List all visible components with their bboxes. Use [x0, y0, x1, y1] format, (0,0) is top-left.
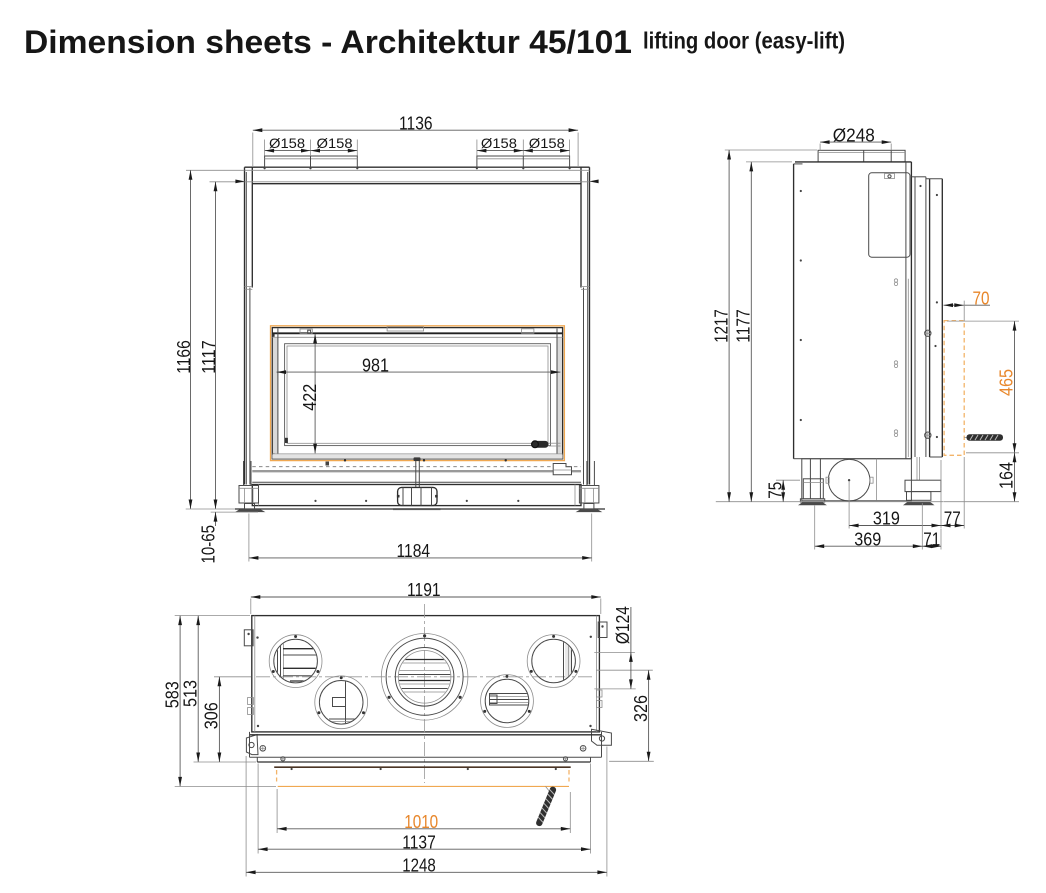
svg-text:1136: 1136 [399, 113, 433, 133]
svg-text:Ø158: Ø158 [317, 135, 353, 151]
svg-text:Ø158: Ø158 [529, 135, 565, 151]
svg-text:lifting door (easy-lift): lifting door (easy-lift) [643, 28, 845, 54]
svg-text:1217: 1217 [711, 309, 731, 343]
svg-text:75: 75 [765, 482, 785, 499]
svg-text:77: 77 [944, 509, 961, 529]
svg-text:583: 583 [162, 681, 182, 708]
svg-text:513: 513 [180, 680, 200, 707]
svg-text:981: 981 [362, 355, 389, 375]
svg-text:1248: 1248 [402, 856, 436, 876]
svg-text:1166: 1166 [174, 340, 194, 374]
svg-text:326: 326 [631, 695, 651, 722]
svg-text:1010: 1010 [404, 812, 438, 832]
svg-text:Dimension sheets - Architektur: Dimension sheets - Architektur 45/101 [24, 24, 632, 60]
svg-text:1184: 1184 [397, 541, 431, 561]
svg-text:164: 164 [997, 462, 1017, 489]
svg-text:306: 306 [202, 702, 222, 729]
svg-text:10-65: 10-65 [199, 525, 219, 564]
svg-text:369: 369 [854, 529, 881, 549]
svg-text:319: 319 [873, 509, 900, 529]
svg-text:70: 70 [973, 288, 990, 308]
svg-text:422: 422 [300, 384, 320, 411]
svg-text:Ø158: Ø158 [269, 135, 305, 151]
svg-text:1137: 1137 [402, 832, 436, 852]
svg-text:465: 465 [997, 369, 1017, 396]
svg-text:1117: 1117 [199, 340, 219, 374]
svg-text:71: 71 [923, 529, 940, 549]
svg-text:1177: 1177 [734, 309, 754, 343]
svg-text:Ø158: Ø158 [481, 135, 517, 151]
svg-text:Ø124: Ø124 [613, 606, 633, 644]
